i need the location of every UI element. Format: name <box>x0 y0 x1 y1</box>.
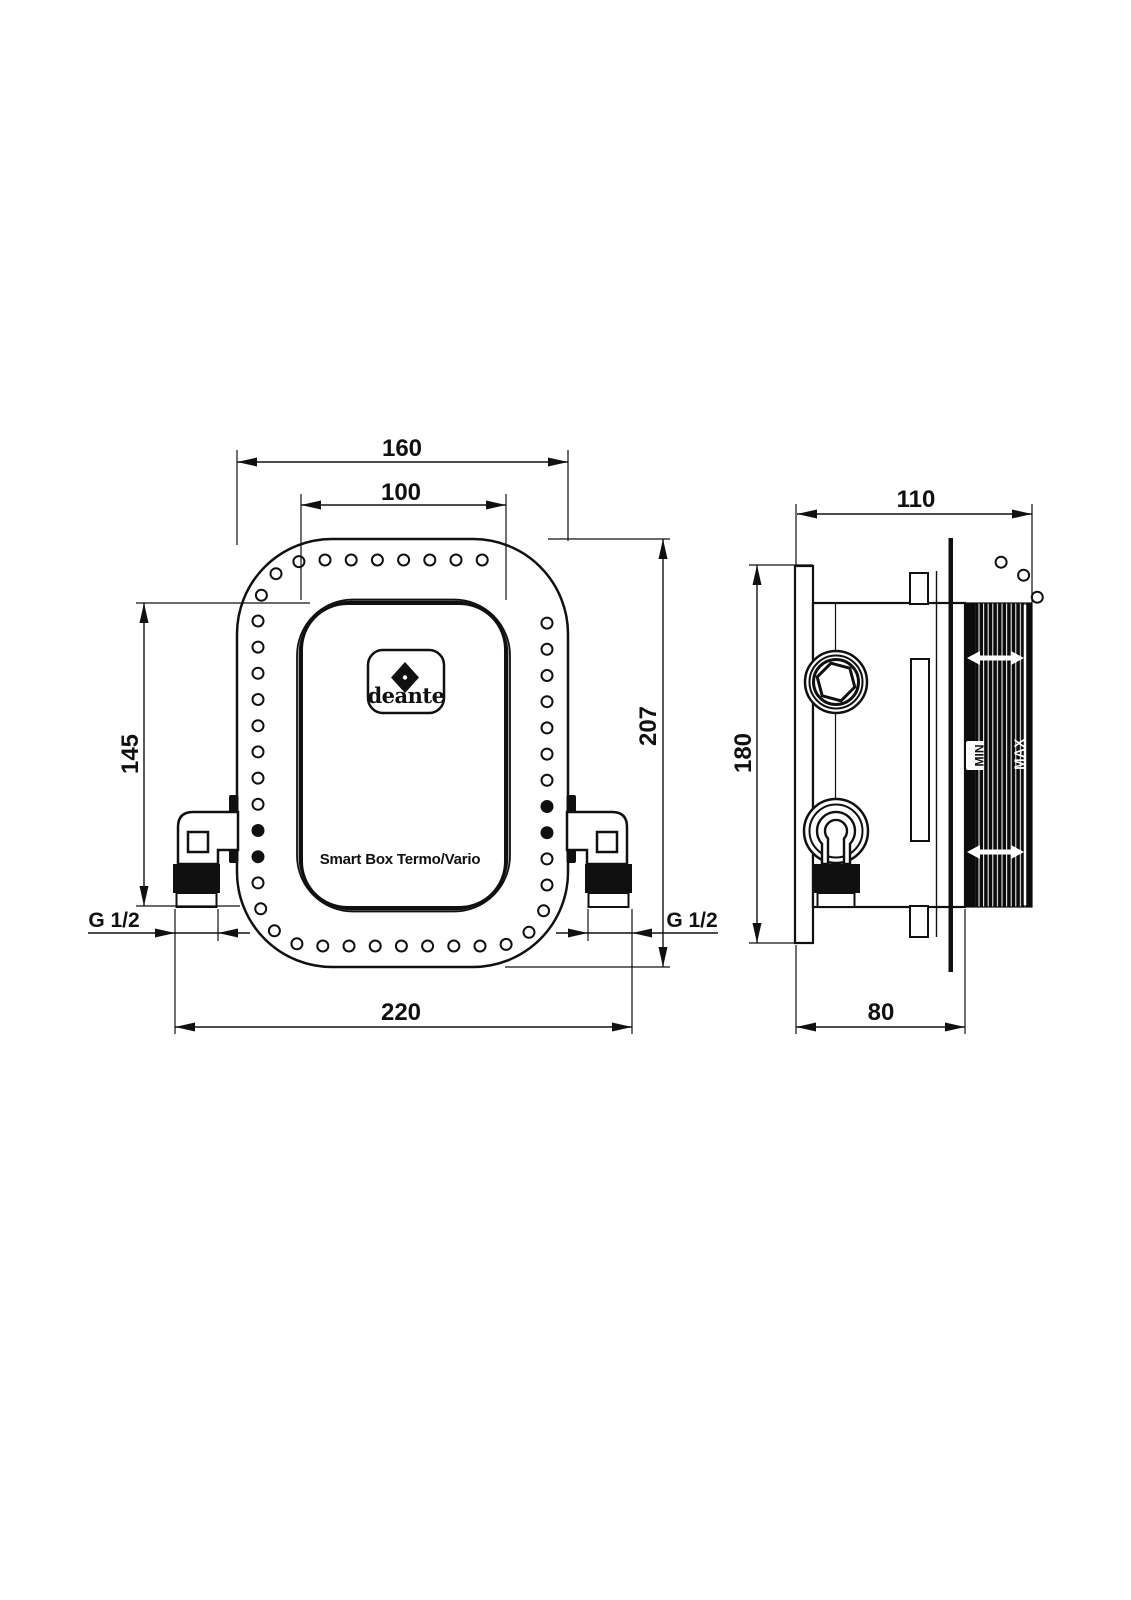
mounting-hole <box>996 557 1007 568</box>
svg-text:207: 207 <box>635 706 662 746</box>
left-thread <box>173 864 220 893</box>
svg-text:110: 110 <box>897 486 936 513</box>
side-front-plate <box>795 566 813 943</box>
mounting-hole <box>370 941 381 952</box>
svg-text:100: 100 <box>381 479 421 506</box>
svg-text:145: 145 <box>117 734 144 774</box>
dim-depth-box: 80 <box>796 909 965 1034</box>
mounting-hole <box>538 905 549 916</box>
right-thread <box>585 864 632 893</box>
mounting-hole <box>317 941 328 952</box>
mounting-hole <box>253 799 264 810</box>
inner-slot <box>911 659 929 841</box>
side-pipe-stub <box>818 893 855 907</box>
mounting-hole <box>542 775 553 786</box>
product-label: Smart Box Termo/Vario <box>320 851 481 868</box>
mounting-hole <box>253 720 264 731</box>
mounting-hole <box>293 556 304 567</box>
mounting-hole <box>253 877 264 888</box>
mounting-hole <box>475 941 486 952</box>
drawing-page: deante Smart Box Termo/Vario <box>0 0 1131 1600</box>
mounting-hole <box>542 696 553 707</box>
mounting-hole <box>424 555 435 566</box>
thread-dim-right: G 1/2 <box>556 909 718 941</box>
side-view: MIN MAX <box>795 538 1032 972</box>
right-pipe-stub <box>589 893 629 907</box>
svg-text:G 1/2: G 1/2 <box>666 909 717 932</box>
left-pipe-stub <box>177 893 217 907</box>
svg-text:220: 220 <box>381 999 421 1026</box>
mounting-hole <box>1032 592 1043 603</box>
right-bracket-hole <box>597 832 617 852</box>
bottom-elbow-connector <box>804 799 868 907</box>
thread-dim-left: G 1/2 <box>88 909 250 941</box>
mounting-hole <box>396 941 407 952</box>
marked-mounting-hole <box>253 825 264 836</box>
mounting-hole <box>253 616 264 627</box>
mounting-hole <box>256 590 267 601</box>
marked-mounting-hole <box>253 851 264 862</box>
mounting-hole <box>344 941 355 952</box>
mounting-hole <box>253 668 264 679</box>
left-connector <box>173 795 239 907</box>
mounting-hole <box>542 749 553 760</box>
mounting-hole <box>542 670 553 681</box>
mounting-hole <box>255 903 266 914</box>
mounting-hole <box>542 722 553 733</box>
mounting-hole <box>422 941 433 952</box>
marked-mounting-hole <box>542 801 553 812</box>
mounting-hole <box>253 694 264 705</box>
mounting-hole <box>542 644 553 655</box>
side-thread <box>812 864 860 893</box>
mounting-hole <box>542 880 553 891</box>
bottom-clip-tab <box>910 906 928 937</box>
mounting-hole <box>291 938 302 949</box>
depth-adjust-zone: MIN MAX <box>965 603 1032 907</box>
min-label: MIN <box>973 745 987 767</box>
svg-text:G 1/2: G 1/2 <box>88 909 139 932</box>
plaster-plate <box>949 538 954 972</box>
mounting-hole <box>451 555 462 566</box>
mounting-hole <box>253 642 264 653</box>
left-bracket-hole <box>188 832 208 852</box>
top-hex-connector <box>805 651 867 713</box>
svg-text:80: 80 <box>868 999 895 1026</box>
right-connector <box>567 795 633 907</box>
mounting-hole <box>346 555 357 566</box>
brand-logo: deante <box>368 650 445 713</box>
mounting-hole <box>477 555 488 566</box>
technical-drawing: deante Smart Box Termo/Vario <box>0 0 1131 1600</box>
mounting-hole <box>372 555 383 566</box>
mounting-hole <box>1018 570 1029 581</box>
max-label: MAX <box>1012 738 1027 770</box>
mounting-hole <box>269 925 280 936</box>
mounting-hole <box>448 941 459 952</box>
mounting-hole <box>542 853 553 864</box>
svg-text:180: 180 <box>730 733 757 773</box>
mounting-hole <box>501 939 512 950</box>
mounting-hole <box>271 568 282 579</box>
mounting-hole <box>320 555 331 566</box>
mounting-hole <box>398 555 409 566</box>
marked-mounting-hole <box>542 827 553 838</box>
mounting-hole <box>524 927 535 938</box>
svg-text:160: 160 <box>382 435 422 462</box>
mounting-hole <box>542 618 553 629</box>
mounting-hole <box>253 773 264 784</box>
top-clip-tab <box>910 573 928 604</box>
mounting-hole <box>253 746 264 757</box>
